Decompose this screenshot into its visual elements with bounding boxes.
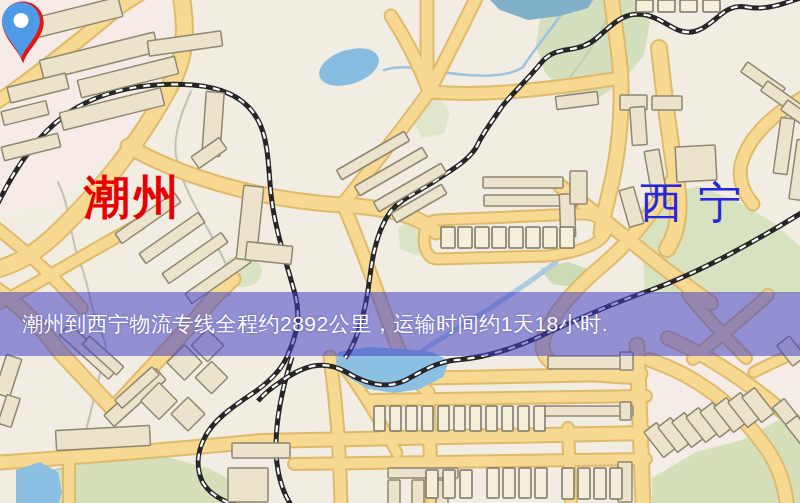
building (454, 406, 465, 431)
building (443, 470, 455, 498)
route-info-text: 潮州到西宁物流专线全程约2892公里，运输时间约1天18小时. (0, 310, 608, 338)
building (652, 96, 682, 110)
building (422, 406, 433, 431)
origin-city-label: 潮州 (84, 174, 182, 220)
road (427, 0, 429, 92)
building (636, 0, 653, 12)
building (483, 177, 563, 188)
building (228, 468, 268, 502)
building (406, 406, 417, 431)
building (492, 227, 506, 248)
building (535, 468, 547, 498)
road (294, 459, 646, 464)
building (487, 468, 499, 498)
building (509, 227, 523, 248)
building (562, 468, 574, 499)
building (534, 406, 545, 431)
building (502, 406, 513, 431)
building (543, 227, 557, 248)
building (56, 426, 151, 451)
building (519, 468, 531, 498)
building (412, 480, 424, 503)
building (438, 406, 449, 431)
building (560, 227, 574, 248)
building (620, 402, 631, 420)
building (458, 227, 472, 248)
building (232, 443, 290, 458)
building (518, 406, 529, 431)
building (426, 470, 438, 498)
building (374, 406, 385, 431)
building (388, 480, 400, 503)
road (370, 396, 646, 400)
road (637, 345, 643, 503)
building (475, 227, 489, 248)
building (703, 0, 720, 12)
road (428, 374, 641, 378)
building (245, 242, 293, 265)
building (675, 145, 717, 182)
info-banner: 潮州到西宁物流专线全程约2892公里，运输时间约1天18小时. (0, 292, 800, 356)
building (578, 468, 590, 499)
destination-pin-icon (0, 0, 42, 61)
building (441, 227, 455, 248)
building (610, 468, 622, 499)
building (630, 107, 648, 146)
map-canvas (0, 0, 800, 503)
destination-city-label: 西宁 (640, 181, 756, 224)
building (470, 406, 481, 431)
building (594, 468, 606, 499)
building (570, 171, 587, 204)
building (503, 468, 515, 498)
building (486, 406, 497, 431)
building (526, 227, 540, 248)
building (390, 406, 401, 431)
building (680, 0, 697, 12)
building (658, 0, 675, 12)
building (460, 470, 472, 498)
map-screenshot: 潮州到西宁物流专线全程约2892公里，运输时间约1天18小时. 潮州 西宁 (0, 0, 800, 503)
